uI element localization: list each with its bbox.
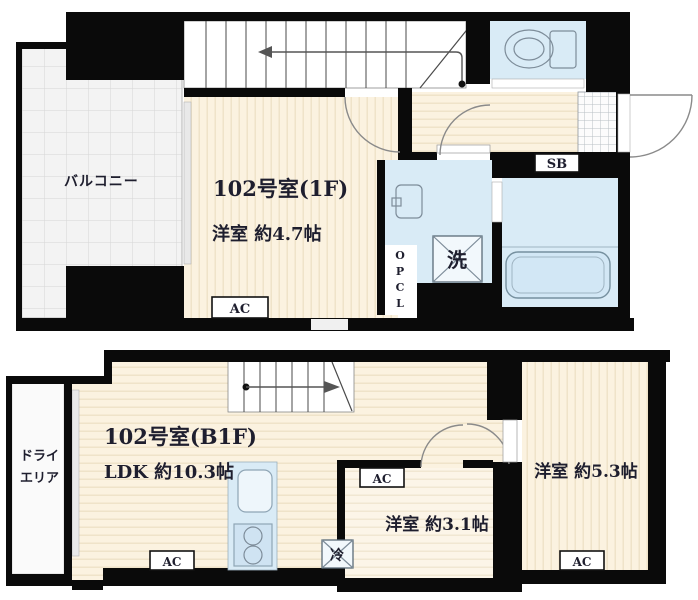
ac-box-3-1: AC [360, 468, 404, 487]
room-1f-size: 洋室 約4.7帖 [212, 223, 322, 245]
shoe-box: SB [535, 154, 579, 172]
fridge-icon: 冷 [322, 540, 353, 568]
dry-area-label-line1: ドライ [20, 449, 59, 464]
bathroom-door [492, 182, 502, 222]
ac-box-ldk: AC [150, 551, 194, 570]
room-b1f-label: 102号室(B1F) [104, 424, 257, 449]
dry-area-label-line2: エリア [20, 471, 59, 486]
bathtub-icon [506, 252, 610, 298]
notch-cover [72, 362, 104, 376]
stairs-b1f [228, 358, 354, 412]
fridge-label: 冷 [330, 547, 344, 564]
room-5-3-door-leaf [503, 420, 517, 462]
washer-label: 洗 [447, 248, 467, 272]
floor-plan-canvas: バルコニー [0, 0, 698, 600]
main-room-1f [184, 97, 398, 318]
closet-letter-o: O [395, 249, 405, 262]
window-bottom-1f [311, 319, 348, 330]
floor-plan-svg: バルコニー [0, 0, 698, 600]
room-5-3-size: 洋室 約5.3帖 [534, 461, 638, 482]
stairs-1f [184, 21, 474, 88]
hallway-1f [412, 92, 578, 152]
washroom-door-leaf [437, 145, 490, 153]
entrance-door [618, 94, 692, 157]
stove-icon [234, 524, 272, 566]
room-1f-label: 102号室(1F) [213, 176, 348, 201]
closet-letter-p: P [396, 265, 404, 278]
ldk-floor-notch [72, 570, 103, 580]
ac-label-1f: AC [229, 302, 250, 317]
washer-pan-icon: 洗 [433, 236, 482, 282]
toilet-door [492, 79, 584, 88]
floor-b1f-plan: ドライ エリア 洋室 約3.1帖 洋室 約5.3帖 [6, 350, 670, 592]
floor-1f-plan: バルコニー [16, 12, 692, 331]
kitchen-unit [228, 462, 277, 570]
ldk-size: LDK 約10.3帖 [104, 461, 234, 483]
ac-box-1f: AC [212, 297, 268, 318]
closet-letter-c: C [396, 281, 405, 294]
ac-label-ldk: AC [162, 555, 182, 569]
closet-letter-l: L [396, 297, 404, 310]
ac-label-5-3: AC [572, 555, 592, 569]
window-dry-area-side [72, 390, 79, 556]
closet-opcl: O P C L [385, 245, 417, 315]
genkan-tile [578, 92, 620, 155]
ac-box-5-3: AC [560, 551, 604, 570]
ac-label-3-1: AC [372, 472, 392, 486]
room-3-1-size: 洋室 約3.1帖 [385, 514, 489, 535]
toilet-room [490, 21, 586, 79]
window-balcony-side [184, 102, 191, 264]
shoe-box-label: SB [547, 157, 567, 172]
entrance-door-arc [630, 95, 692, 157]
balcony-label: バルコニー [64, 174, 139, 190]
kitchen-sink-icon [238, 470, 272, 512]
